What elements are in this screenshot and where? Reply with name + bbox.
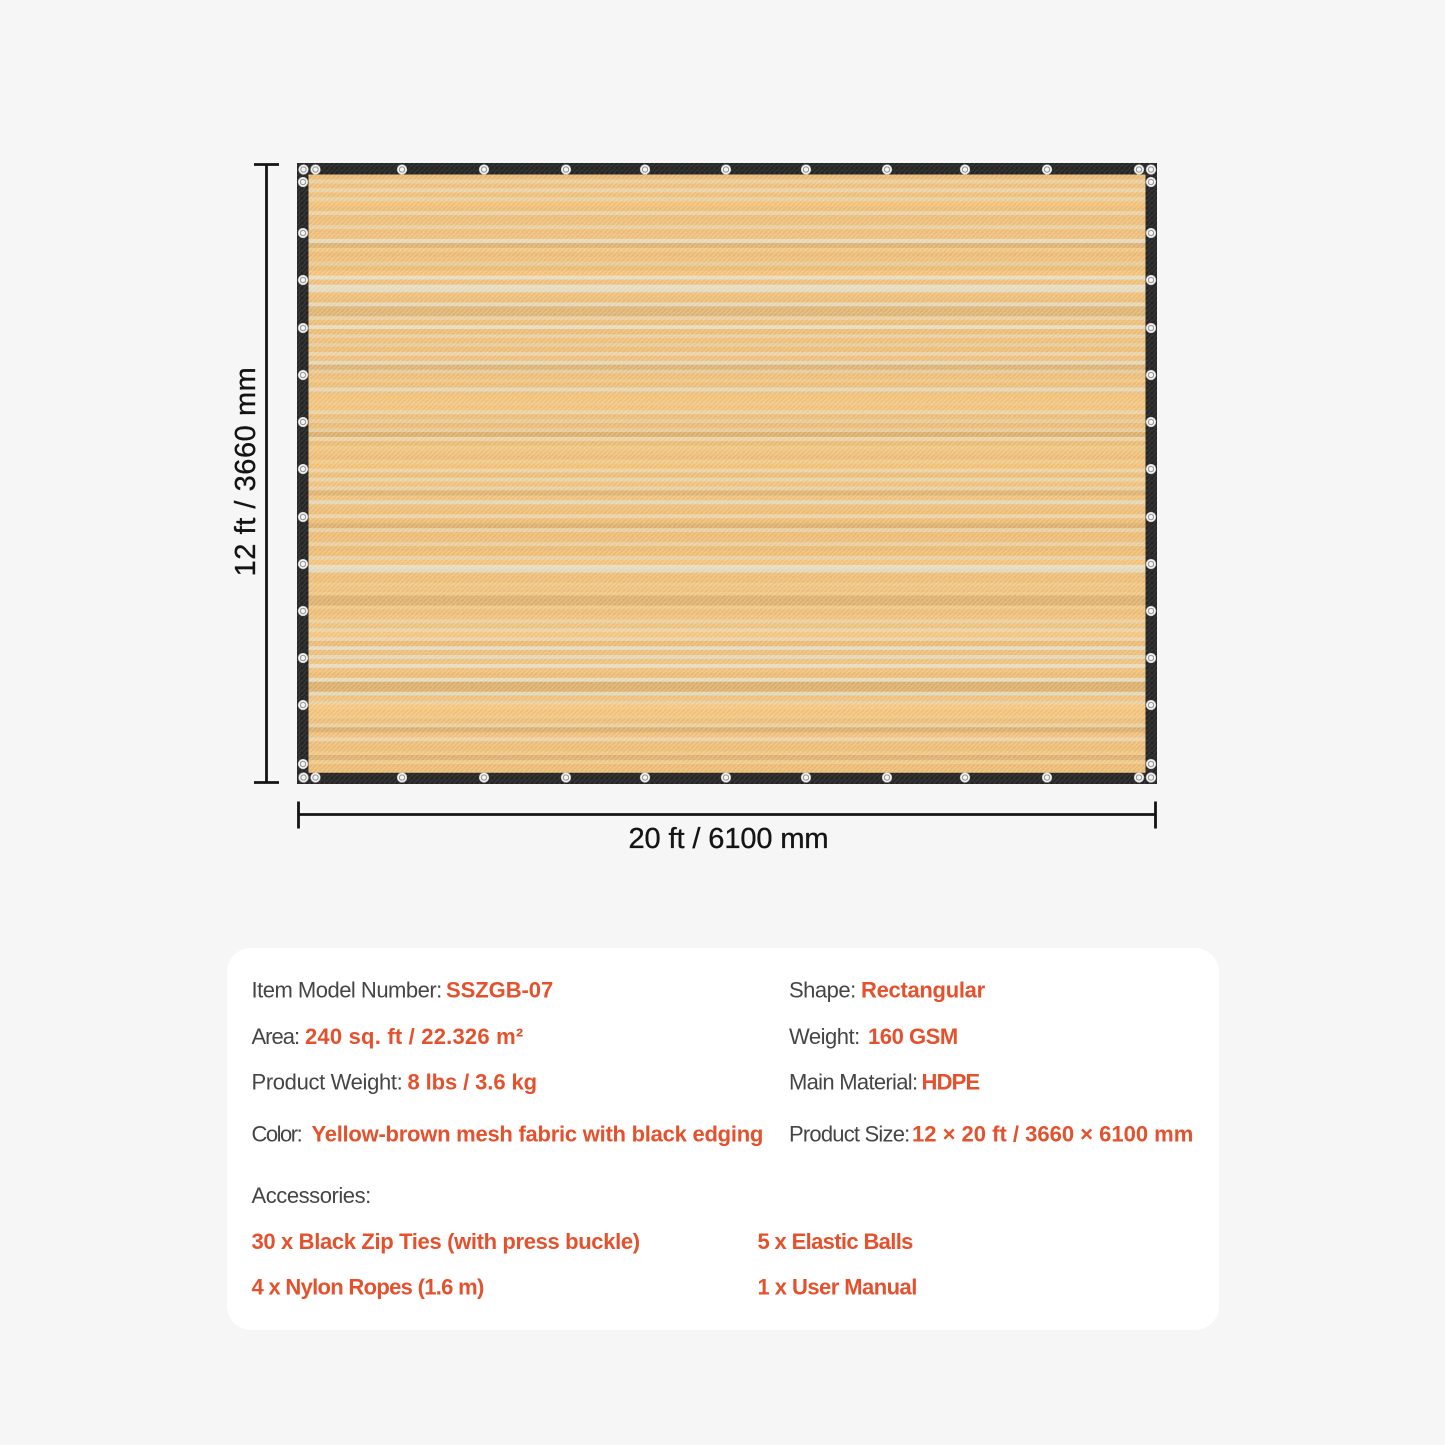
svg-text:12 × 20 ft / 3660 × 6100 mm: 12 × 20 ft / 3660 × 6100 mm bbox=[912, 1122, 1193, 1147]
svg-text:20 ft / 6100 mm: 20 ft / 6100 mm bbox=[629, 823, 829, 855]
svg-text:HDPE: HDPE bbox=[922, 1070, 980, 1095]
svg-text:Item Model Number:: Item Model Number: bbox=[252, 978, 442, 1003]
svg-text:Main Material:: Main Material: bbox=[789, 1070, 917, 1095]
svg-text:Accessories:: Accessories: bbox=[252, 1183, 371, 1208]
svg-text:4 x Nylon Ropes (1.6 m): 4 x Nylon Ropes (1.6 m) bbox=[252, 1275, 484, 1300]
svg-text:SSZGB-07: SSZGB-07 bbox=[446, 978, 553, 1003]
svg-text:1 x User Manual: 1 x User Manual bbox=[758, 1275, 917, 1300]
svg-text:8 lbs / 3.6 kg: 8 lbs / 3.6 kg bbox=[408, 1070, 537, 1095]
svg-text:Area:: Area: bbox=[252, 1024, 300, 1049]
svg-text:160 GSM: 160 GSM bbox=[868, 1024, 958, 1049]
svg-text:Yellow-brown mesh fabric with: Yellow-brown mesh fabric with black edgi… bbox=[312, 1122, 764, 1147]
svg-text:240 sq. ft / 22.326 m²: 240 sq. ft / 22.326 m² bbox=[305, 1024, 523, 1049]
svg-text:Weight:: Weight: bbox=[789, 1024, 860, 1049]
svg-text:30 x Black Zip Ties (with pres: 30 x Black Zip Ties (with press buckle) bbox=[252, 1229, 640, 1254]
svg-text:Product Weight:: Product Weight: bbox=[252, 1070, 403, 1095]
svg-text:Color:: Color: bbox=[252, 1122, 302, 1147]
svg-text:5 x Elastic Balls: 5 x Elastic Balls bbox=[758, 1229, 914, 1254]
svg-text:12 ft / 3660 mm: 12 ft / 3660 mm bbox=[230, 367, 262, 577]
svg-text:Shape:: Shape: bbox=[789, 978, 856, 1003]
svg-text:Product Size:: Product Size: bbox=[789, 1122, 909, 1147]
svg-text:Rectangular: Rectangular bbox=[861, 978, 986, 1003]
